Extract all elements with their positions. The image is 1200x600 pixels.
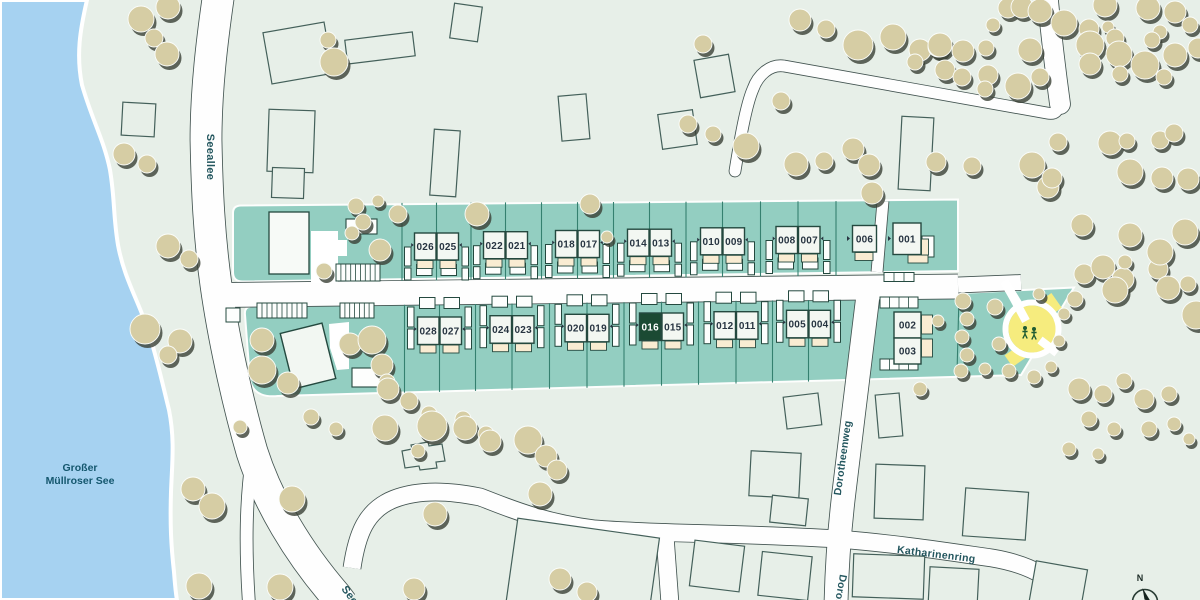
svg-text:027: 027	[442, 326, 460, 337]
svg-text:008: 008	[778, 236, 796, 247]
svg-text:N: N	[1137, 573, 1144, 583]
svg-text:015: 015	[664, 322, 682, 333]
svg-text:013: 013	[652, 238, 670, 249]
svg-text:028: 028	[420, 326, 438, 337]
svg-text:007: 007	[801, 236, 819, 247]
svg-text:016: 016	[642, 322, 660, 333]
svg-text:Seeallee: Seeallee	[204, 134, 216, 180]
svg-text:005: 005	[789, 320, 807, 331]
svg-text:Großer: Großer	[62, 462, 97, 474]
svg-text:002: 002	[899, 321, 917, 332]
svg-text:022: 022	[486, 241, 504, 252]
svg-text:004: 004	[811, 320, 829, 331]
svg-text:018: 018	[558, 240, 576, 251]
svg-text:001: 001	[898, 234, 916, 245]
svg-text:023: 023	[515, 325, 533, 336]
svg-text:010: 010	[703, 237, 721, 248]
svg-text:014: 014	[630, 238, 648, 249]
svg-text:006: 006	[856, 234, 874, 245]
svg-text:017: 017	[580, 240, 598, 251]
svg-text:011: 011	[739, 321, 756, 332]
svg-text:012: 012	[716, 321, 734, 332]
svg-text:020: 020	[567, 324, 585, 335]
svg-text:026: 026	[417, 242, 435, 253]
svg-text:019: 019	[590, 324, 608, 335]
svg-text:Müllroser See: Müllroser See	[46, 475, 115, 487]
svg-text:021: 021	[508, 241, 526, 252]
svg-text:009: 009	[725, 237, 743, 248]
svg-text:024: 024	[492, 325, 510, 336]
svg-text:003: 003	[899, 347, 917, 358]
svg-text:025: 025	[439, 242, 457, 253]
